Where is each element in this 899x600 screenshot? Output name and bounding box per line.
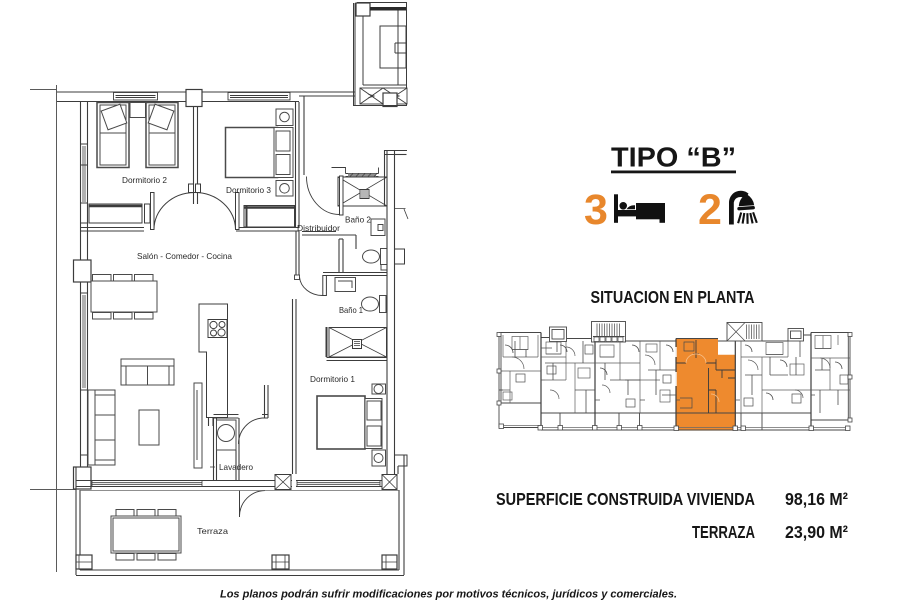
svg-text:Terraza: Terraza [197,526,228,536]
svg-text:2: 2 [698,186,722,234]
svg-text:TERRAZA: TERRAZA [692,522,755,542]
svg-text:Dormitorio 2: Dormitorio 2 [122,175,167,185]
svg-text:23,90 M²: 23,90 M² [785,522,848,542]
svg-text:Salón - Comedor - Cocina: Salón - Comedor - Cocina [137,251,232,261]
svg-text:3: 3 [584,186,608,234]
svg-text:Los planos podrán sufrir modif: Los planos podrán sufrir modificaciones … [220,589,677,600]
svg-text:Dormitorio 3: Dormitorio 3 [226,185,271,195]
svg-text:Baño 1: Baño 1 [339,305,363,315]
svg-text:Dormitorio 1: Dormitorio 1 [310,374,355,384]
svg-text:SITUACION EN PLANTA: SITUACION EN PLANTA [591,287,755,307]
svg-text:SUPERFICIE CONSTRUIDA VIVIENDA: SUPERFICIE CONSTRUIDA VIVIENDA [496,489,755,509]
svg-text:98,16 M²: 98,16 M² [785,489,848,509]
svg-text:TIPO “B”: TIPO “B” [611,142,736,173]
svg-text:Baño 2: Baño 2 [345,215,371,225]
svg-text:Lavadero: Lavadero [219,462,253,472]
